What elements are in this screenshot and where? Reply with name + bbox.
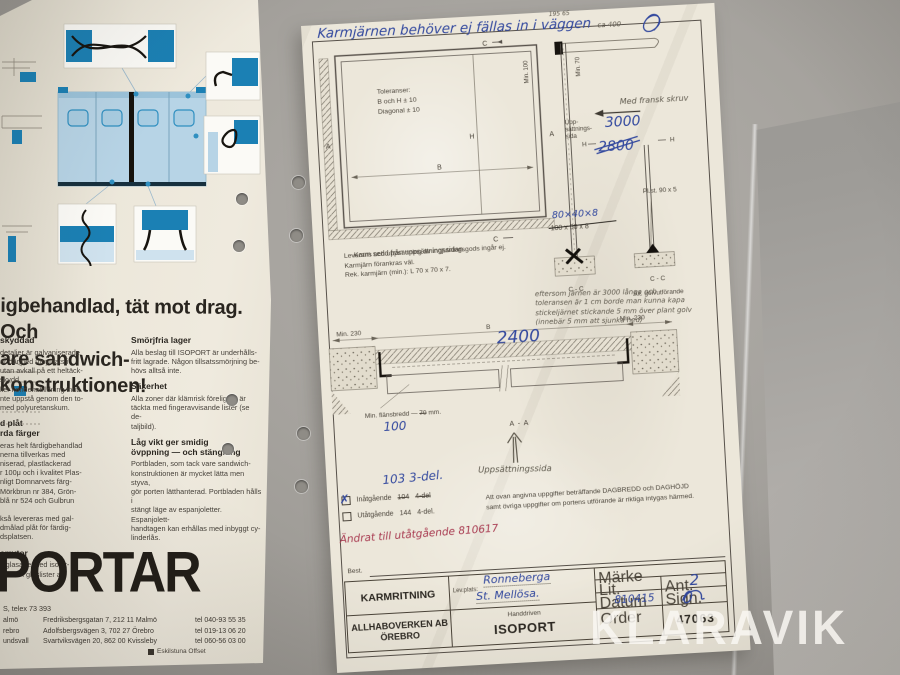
section-body: Portbladen, som tack vare sandwich- kons… xyxy=(131,459,262,542)
checkbox-inatgaende: ✗ xyxy=(341,496,350,505)
brochure-page: igbehandlad, tät mot drag. Och are sandw… xyxy=(0,0,272,675)
address-street: Adolfsbergsvägen 3, 702 27 Örebro xyxy=(43,627,195,638)
handwritten-100: 100 xyxy=(383,419,407,434)
punch-hole xyxy=(290,229,303,242)
svg-text:Min. 100: Min. 100 xyxy=(523,60,530,84)
svg-text:Min. 230: Min. 230 xyxy=(620,314,646,322)
flansbredd-unit: mm. xyxy=(428,409,441,417)
svg-text:C - C: C - C xyxy=(650,275,666,283)
variant-label: Utåtgående xyxy=(357,511,394,520)
address-row: undsvall Svartviksvägen 20, 862 00 Kviss… xyxy=(3,637,253,648)
svg-text:B: B xyxy=(486,324,491,331)
address-street: Svartviksvägen 20, 862 00 Kvissleby xyxy=(43,637,195,648)
section-body: Alla beslag till ISOPORT är underhålls- … xyxy=(131,348,262,376)
best-label: Best. xyxy=(347,567,362,575)
up-arrow-sketch xyxy=(504,428,526,465)
svg-text:Diagonal ± 10: Diagonal ± 10 xyxy=(378,106,420,115)
section-heading: Säkerhet xyxy=(131,382,262,392)
telex-line: S, telex 73 393 xyxy=(3,604,51,613)
punch-hole xyxy=(226,394,238,406)
flansbredd-old-value: 70 xyxy=(419,410,427,417)
variant-code: 144 xyxy=(399,510,411,518)
section-aa-label: A - A xyxy=(509,420,529,428)
svg-text:C: C xyxy=(482,41,487,48)
address-row: almö Fredriksbergsgatan 7, 212 11 Malmö … xyxy=(3,616,253,627)
section-body: Alla zoner där klämrisk föreligger är tä… xyxy=(131,394,262,431)
svg-text:A: A xyxy=(326,144,331,151)
handwritten-x-mark: ✗ xyxy=(339,492,350,507)
address-row: rebro Adolfsbergsvägen 3, 702 27 Örebro … xyxy=(3,627,253,638)
svg-text:B: B xyxy=(437,164,442,171)
photo-of-documents: igbehandlad, tät mot drag. Och are sandw… xyxy=(0,0,900,675)
drawing-title: KARMRITNING xyxy=(345,577,451,617)
address-city: undsvall xyxy=(3,637,43,648)
punch-hole xyxy=(295,480,308,493)
address-city: rebro xyxy=(3,627,43,638)
svg-text:80×40×8: 80×40×8 xyxy=(552,208,599,222)
variant-del: 4-del xyxy=(415,492,431,500)
levplats-value-1: Ronneberga xyxy=(483,570,551,588)
svg-text:Med fransk skruv: Med fransk skruv xyxy=(619,93,688,106)
punch-hole xyxy=(236,193,248,205)
printer-logo-icon xyxy=(148,649,154,655)
svg-text:H: H xyxy=(582,141,587,148)
checkbox-utatgaende xyxy=(342,512,351,521)
uppsattningssida-pencil: Uppsättningssida xyxy=(478,464,552,476)
address-tel: tel 040-93 55 35 xyxy=(195,616,246,627)
variant-del: 4-del. xyxy=(417,508,435,516)
ant-value: 2 xyxy=(689,571,700,590)
address-street: Fredriksbergsgatan 7, 212 11 Malmö xyxy=(43,616,195,627)
svg-text:ca 400: ca 400 xyxy=(597,20,622,29)
section-heading: Smörjfria lager xyxy=(131,336,262,346)
svg-text:Min. 70: Min. 70 xyxy=(575,56,582,77)
printer-credit: Eskilstuna Offset xyxy=(148,648,206,655)
variant-code: 104 xyxy=(397,494,409,502)
svg-text:3000: 3000 xyxy=(604,113,641,131)
svg-text:B och H ± 10: B och H ± 10 xyxy=(377,97,417,106)
levplats-label: Lev.plats: xyxy=(453,587,479,594)
isoportar-logo: PORTAR xyxy=(0,540,200,606)
punch-hole xyxy=(297,427,310,440)
section-heading: d plåt rda färger xyxy=(0,419,121,439)
svg-text:Min. 230: Min. 230 xyxy=(336,330,362,338)
address-block: almö Fredriksbergsgatan 7, 212 11 Malmö … xyxy=(3,616,253,648)
section-heading: skyddad xyxy=(0,336,121,346)
printer-name: Eskilstuna Offset xyxy=(157,648,206,655)
uppsattningssida-label: Upp- sättnings- sida xyxy=(565,118,593,141)
punch-hole xyxy=(292,176,305,189)
svg-text:Pl.st. 90 x 5: Pl.st. 90 x 5 xyxy=(643,186,678,195)
address-tel: tel 019-13 06 20 xyxy=(195,627,246,638)
punch-hole xyxy=(233,240,245,252)
product-row: Handdriven ISOPORT xyxy=(451,602,599,646)
svg-text:H: H xyxy=(469,133,474,140)
karm-vertical-section-drawing: ca 400 Min. 100 Min. 70 3000 H 2800 H 80… xyxy=(515,10,707,315)
punch-hole xyxy=(222,443,234,455)
door-illustration xyxy=(56,14,261,266)
company-name: ALLHABOVERKEN AB ÖREBRO xyxy=(347,611,453,653)
address-tel: tel 060-56 03 00 xyxy=(195,637,246,648)
section-heading: Låg vikt ger smidig övppning — och stäng… xyxy=(131,438,262,458)
svg-text:H: H xyxy=(670,136,675,143)
section-body: eras helt färdigbehandlad nerna tillverk… xyxy=(0,441,121,542)
svg-text:Toleranser:: Toleranser: xyxy=(377,87,411,96)
variant-label: Inåtgående xyxy=(356,495,391,504)
address-city: almö xyxy=(3,616,43,627)
section-body: detaljer är galvaniserade. ar därmed utn… xyxy=(0,348,121,412)
levplats-value-2: St. Mellösa. xyxy=(476,587,540,605)
klaravik-watermark: KLARAVIK xyxy=(590,599,848,656)
karmritning-page: Karmjärnen behöver ej fällas in i väggen… xyxy=(301,3,751,673)
